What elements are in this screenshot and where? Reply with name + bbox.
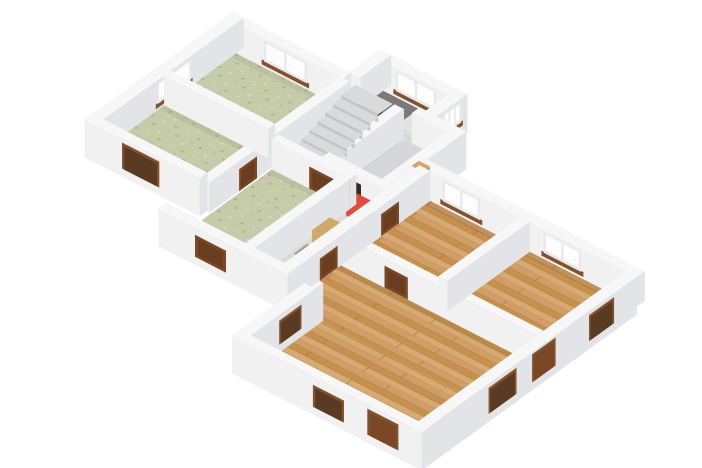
outer-wall-ne-wing-face-se	[637, 271, 645, 307]
outer-wall-sw1-face-se	[200, 173, 208, 217]
wall-bedroom-divider-face-sw	[438, 277, 447, 312]
porch-window-se-glass	[456, 105, 460, 124]
floorplan-3d-view	[0, 0, 702, 468]
outer-wall-s-face-se	[422, 427, 430, 468]
wall-hall-south-face-se	[350, 174, 357, 209]
floorplan-3d-render	[0, 0, 702, 468]
outer-wall-step-face-sw	[232, 335, 243, 379]
outer-wall-sw2-face-se	[315, 283, 323, 327]
